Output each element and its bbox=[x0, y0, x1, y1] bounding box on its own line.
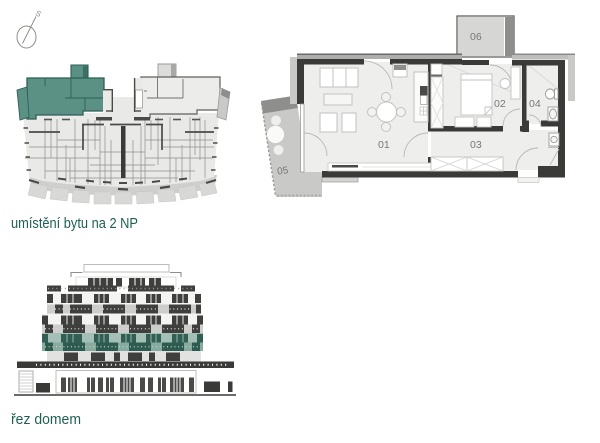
svg-text:umístění bytu na 2 NP: umístění bytu na 2 NP bbox=[11, 215, 138, 232]
svg-text:02: 02 bbox=[494, 98, 506, 110]
svg-text:01: 01 bbox=[378, 139, 390, 151]
svg-text:řez domem: řez domem bbox=[11, 411, 81, 428]
svg-text:06: 06 bbox=[470, 31, 482, 43]
svg-text:05: 05 bbox=[276, 165, 289, 178]
svg-text:04: 04 bbox=[529, 98, 541, 110]
svg-text:03: 03 bbox=[470, 139, 482, 151]
